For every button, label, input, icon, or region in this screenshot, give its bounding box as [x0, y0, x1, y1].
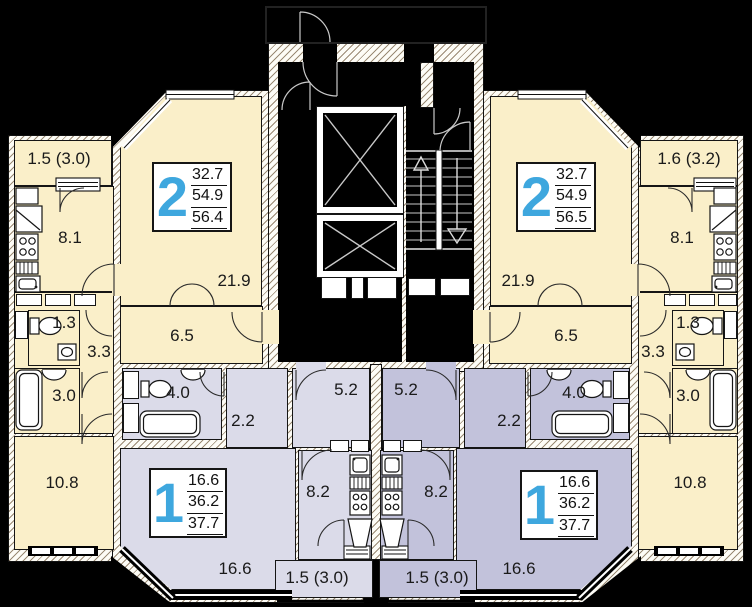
label-kitchen-right: 8.1 [670, 228, 694, 248]
apartment-area: 54.9 [191, 186, 227, 207]
label-balcony-bottom-left: 1.5 (3.0) [285, 568, 348, 588]
stairwell [406, 150, 474, 250]
floor-plan: 1.5 (3.0) 8.1 21.9 6.5 1.3 3.3 3.0 10.8 … [0, 0, 752, 607]
total-area: 37.7 [187, 514, 223, 535]
apartment-card-2room-left: 2 32.7 54.9 56.4 [152, 162, 232, 232]
label-living2-left: 21.9 [217, 271, 250, 291]
vestibule-right [406, 62, 474, 150]
duct-box-1 [321, 277, 347, 299]
apartment-area: 36.2 [187, 492, 223, 513]
label-hall2-right: 6.5 [554, 326, 578, 346]
label-corr52-right: 5.2 [394, 380, 418, 400]
label-kitchen82-left: 8.2 [306, 482, 330, 502]
cabinet-k82-right-2 [403, 440, 422, 452]
cabinet-k82-left-1 [330, 440, 349, 452]
room-corr52-left [292, 368, 370, 448]
label-hall22-left: 2.2 [231, 411, 255, 431]
shaft-bath4-right-2 [613, 403, 629, 433]
living-area: 32.7 [555, 165, 591, 186]
elevator-cab-1 [323, 113, 397, 207]
shaft-bath4-left-1 [123, 371, 139, 399]
door-gap-hall2-right [473, 310, 490, 344]
door-gap-kitchen-right [630, 264, 640, 296]
door-gap-hall2-left [262, 310, 279, 344]
vestibule-stub-wall [420, 62, 434, 108]
living-area: 16.6 [187, 471, 223, 492]
cabinet-left-2 [45, 294, 71, 306]
label-living1-left: 16.6 [218, 559, 251, 579]
label-bedroom-right: 10.8 [673, 473, 706, 493]
front-door-opening-right [404, 42, 434, 62]
label-bath4-right: 4.0 [562, 383, 586, 403]
label-balcony-bottom-right: 1.5 (3.0) [405, 568, 468, 588]
shaft-wc-left [15, 311, 28, 339]
apartment-rooms-count: 1 [524, 479, 555, 531]
label-wc-right: 1.3 [676, 313, 700, 333]
label-hall3-left: 3.3 [87, 342, 111, 362]
total-area: 37.7 [558, 516, 594, 537]
duct-box-2 [351, 277, 364, 299]
door-gap-corr52-left [296, 362, 326, 372]
cabinet-right-2 [689, 294, 715, 306]
label-hall22-right: 2.2 [497, 411, 521, 431]
corridor-left [278, 62, 318, 362]
room-bedroom-right [638, 436, 738, 550]
living-area: 16.6 [558, 473, 594, 494]
living-area: 32.7 [191, 165, 227, 186]
cabinet-left-1 [16, 294, 42, 306]
label-bath3-left: 3.0 [52, 386, 76, 406]
label-balcony-top-left: 1.5 (3.0) [27, 149, 90, 169]
label-living1-right: 16.6 [502, 559, 535, 579]
apartment-rooms-count: 2 [157, 171, 188, 223]
label-bedroom-left: 10.8 [45, 473, 78, 493]
entrance-porch [265, 6, 487, 44]
label-hall2-left: 6.5 [170, 326, 194, 346]
cabinet-k82-left-2 [351, 440, 369, 452]
cabinet-k82-right-1 [383, 440, 401, 452]
shaft-bath4-left-2 [123, 403, 139, 433]
apartment-card-2room-right: 2 32.7 54.9 56.5 [516, 162, 596, 232]
room-kitchen82-right [380, 450, 454, 560]
room-kitchen82-left [298, 450, 372, 560]
label-kitchen-left: 8.1 [58, 228, 82, 248]
apartment-card-1room-left: 1 16.6 36.2 37.7 [149, 468, 227, 538]
apartment-rooms-count: 1 [153, 477, 184, 529]
room-hall22-left [226, 368, 288, 448]
label-bath3-right: 3.0 [676, 386, 700, 406]
total-area: 56.4 [191, 208, 227, 229]
shaft-bath4-right-1 [613, 371, 629, 399]
label-wc-left: 1.3 [52, 313, 76, 333]
label-bath4-left: 4.0 [166, 383, 190, 403]
duct-box-5 [440, 278, 470, 296]
door-gap-kitchen-left [112, 264, 122, 296]
label-kitchen82-right: 8.2 [424, 482, 448, 502]
room-hall22-right [464, 368, 526, 448]
apartment-rooms-count: 2 [521, 171, 552, 223]
apartment-area: 36.2 [558, 494, 594, 515]
door-gap-corr52-right [426, 362, 456, 372]
duct-box-4 [408, 278, 436, 296]
room-bedroom-left [14, 436, 114, 550]
label-living2-right: 21.9 [501, 271, 534, 291]
cabinet-left-3 [74, 294, 96, 306]
corridor-right-lower [406, 250, 474, 362]
cabinet-right-1 [664, 294, 686, 306]
shaft-wc-right [724, 311, 737, 339]
duct-box-3 [367, 277, 397, 299]
elevator-cab-2 [323, 221, 397, 271]
total-area: 56.5 [555, 208, 591, 229]
label-hall3-right: 3.3 [641, 342, 665, 362]
apartment-area: 54.9 [555, 186, 591, 207]
front-door-opening-left [303, 42, 337, 62]
label-corr52-left: 5.2 [334, 380, 358, 400]
label-balcony-top-right: 1.6 (3.2) [657, 149, 720, 169]
apartment-card-1room-right: 1 16.6 36.2 37.7 [520, 470, 598, 540]
cabinet-right-3 [718, 294, 737, 306]
